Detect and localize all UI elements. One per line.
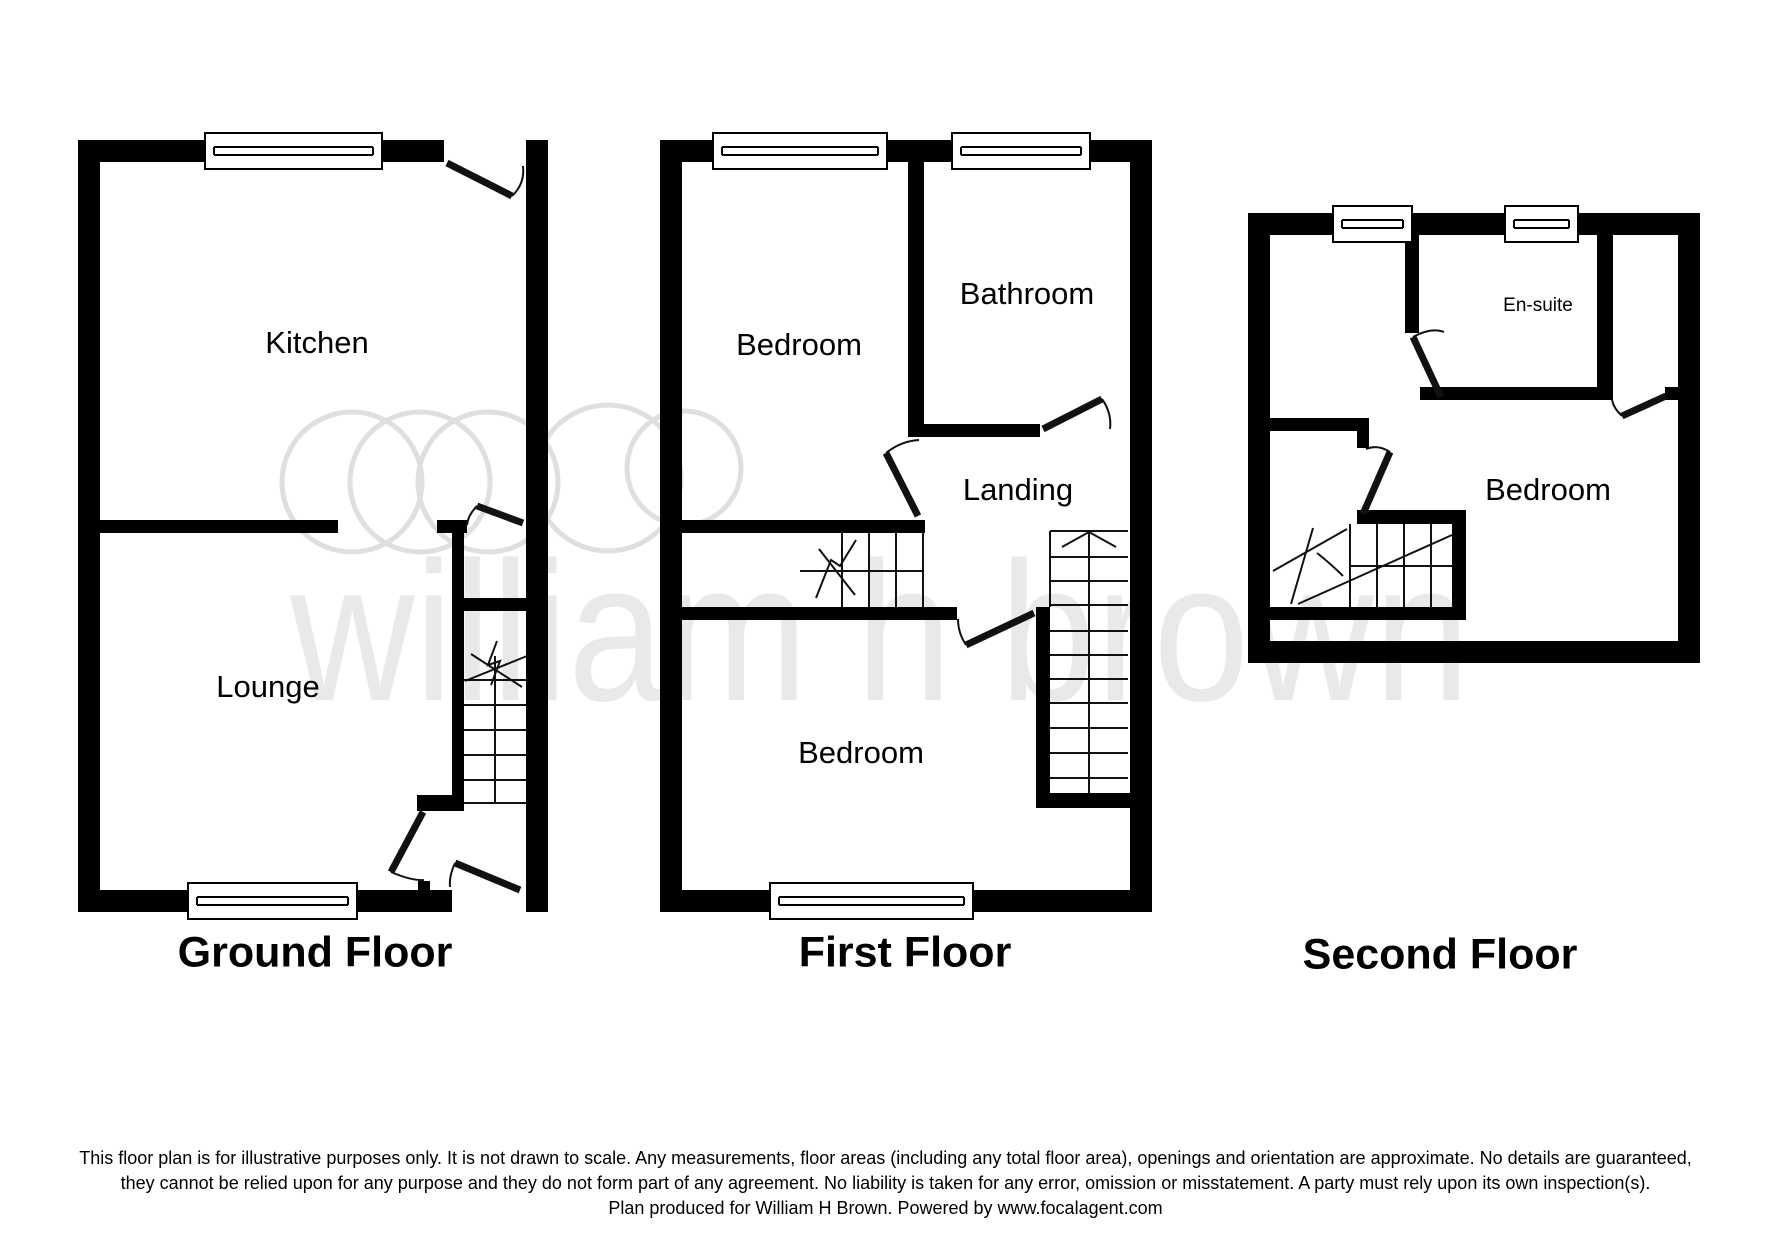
room-label-landing: Landing: [963, 472, 1073, 508]
floorplan-page: william h brown: [0, 0, 1771, 1240]
room-label-bathroom: Bathroom: [960, 276, 1094, 312]
labels-layer: Kitchen Lounge Bedroom Bathroom Landing …: [0, 0, 1771, 1240]
room-label-kitchen: Kitchen: [265, 325, 368, 361]
room-label-bedroom-rear: Bedroom: [798, 735, 924, 771]
disclaimer-line-2: they cannot be relied upon for any purpo…: [0, 1171, 1771, 1196]
floor-title-ground: Ground Floor: [178, 929, 453, 978]
room-label-lounge: Lounge: [216, 669, 319, 705]
floor-title-second: Second Floor: [1303, 931, 1578, 980]
disclaimer-line-3: Plan produced for William H Brown. Power…: [0, 1196, 1771, 1221]
disclaimer-line-1: This floor plan is for illustrative purp…: [0, 1146, 1771, 1171]
room-label-bedroom-second: Bedroom: [1485, 472, 1611, 508]
floor-title-first: First Floor: [799, 929, 1012, 978]
room-label-ensuite: En-suite: [1503, 295, 1573, 317]
room-label-bedroom-front: Bedroom: [736, 327, 862, 363]
disclaimer-text: This floor plan is for illustrative purp…: [0, 1146, 1771, 1221]
